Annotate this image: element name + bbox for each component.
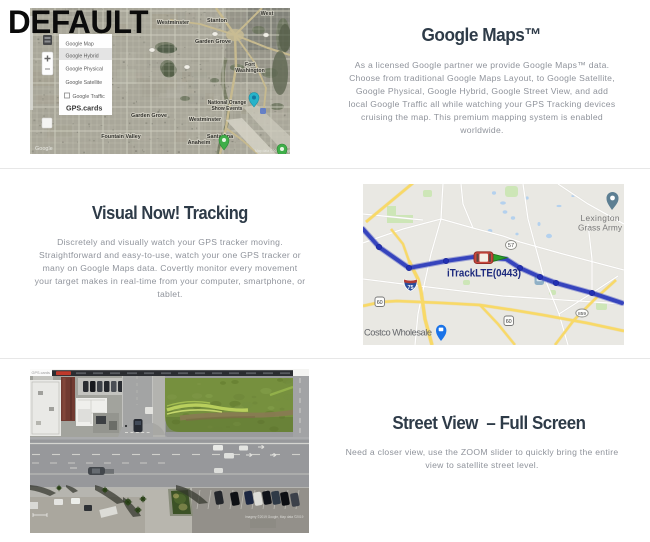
svg-text:Fountain Valley: Fountain Valley xyxy=(101,134,141,140)
svg-text:West: West xyxy=(261,11,274,17)
svg-text:Grass Army: Grass Army xyxy=(578,223,623,233)
svg-text:Washington: Washington xyxy=(235,68,265,74)
svg-text:60: 60 xyxy=(506,319,512,325)
svg-text:Lexington: Lexington xyxy=(581,213,620,223)
svg-text:859: 859 xyxy=(578,311,586,317)
svg-text:57: 57 xyxy=(508,243,514,249)
svg-text:Google: Google xyxy=(35,146,53,152)
svg-text:60: 60 xyxy=(377,300,383,306)
svg-text:GPS.cards: GPS.cards xyxy=(32,371,50,375)
svg-text:Show Events: Show Events xyxy=(211,106,242,112)
svg-text:Google Physical: Google Physical xyxy=(66,67,104,73)
svg-text:75: 75 xyxy=(408,285,414,291)
svg-text:Westminster: Westminster xyxy=(157,20,190,26)
svg-text:Garden Grove: Garden Grove xyxy=(195,39,231,45)
svg-text:Google Traffic: Google Traffic xyxy=(73,94,106,100)
svg-text:Google Hybrid: Google Hybrid xyxy=(66,54,99,60)
svg-text:Garden Grove: Garden Grove xyxy=(131,113,167,119)
svg-text:Imagery ©2019 Google, Map data: Imagery ©2019 Google, Map data ©2019 xyxy=(245,515,304,519)
svg-text:Google Map: Google Map xyxy=(66,42,94,48)
svg-text:iTrackLTE(0443): iTrackLTE(0443) xyxy=(447,267,521,279)
svg-text:Westminster: Westminster xyxy=(189,117,222,123)
svg-text:Costco Wholesale: Costco Wholesale xyxy=(364,328,432,338)
svg-text:Stanton: Stanton xyxy=(207,18,227,24)
svg-text:Google Satellite: Google Satellite xyxy=(66,80,103,86)
svg-text:GPS.cards: GPS.cards xyxy=(66,104,102,113)
svg-text:Anaheim: Anaheim xyxy=(188,140,211,146)
